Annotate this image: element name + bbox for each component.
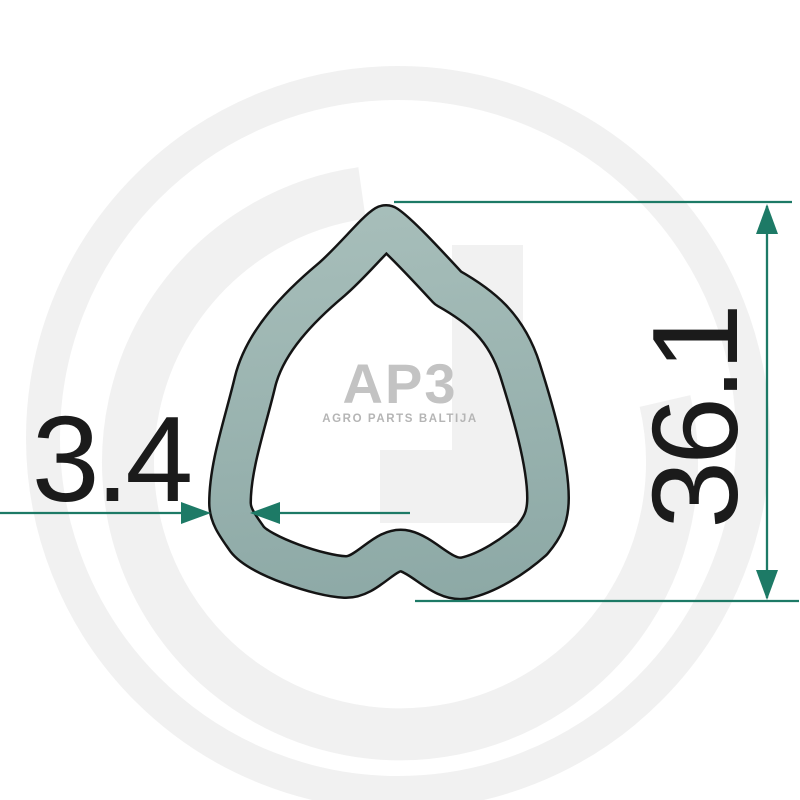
product-diagram: AP3 AGRO PARTS BALTIJA 3.4 36.1 [0, 0, 800, 800]
outer-dimension-label: 36.1 [630, 268, 760, 568]
arrowhead-up-icon [756, 204, 778, 234]
arrowhead-down-icon [756, 570, 778, 600]
apb-logo-subtitle: AGRO PARTS BALTIJA [250, 414, 550, 426]
apb-logo-text: AP3 [250, 356, 550, 412]
wall-thickness-label: 3.4 [8, 398, 213, 520]
